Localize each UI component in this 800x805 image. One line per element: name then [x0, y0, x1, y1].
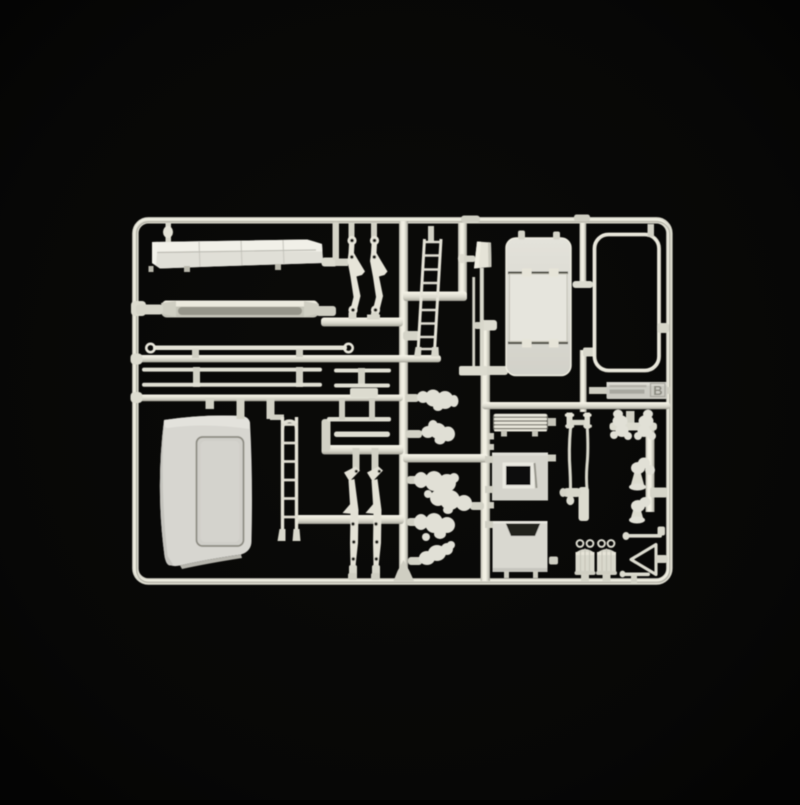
svg-text:B: B — [653, 383, 662, 398]
